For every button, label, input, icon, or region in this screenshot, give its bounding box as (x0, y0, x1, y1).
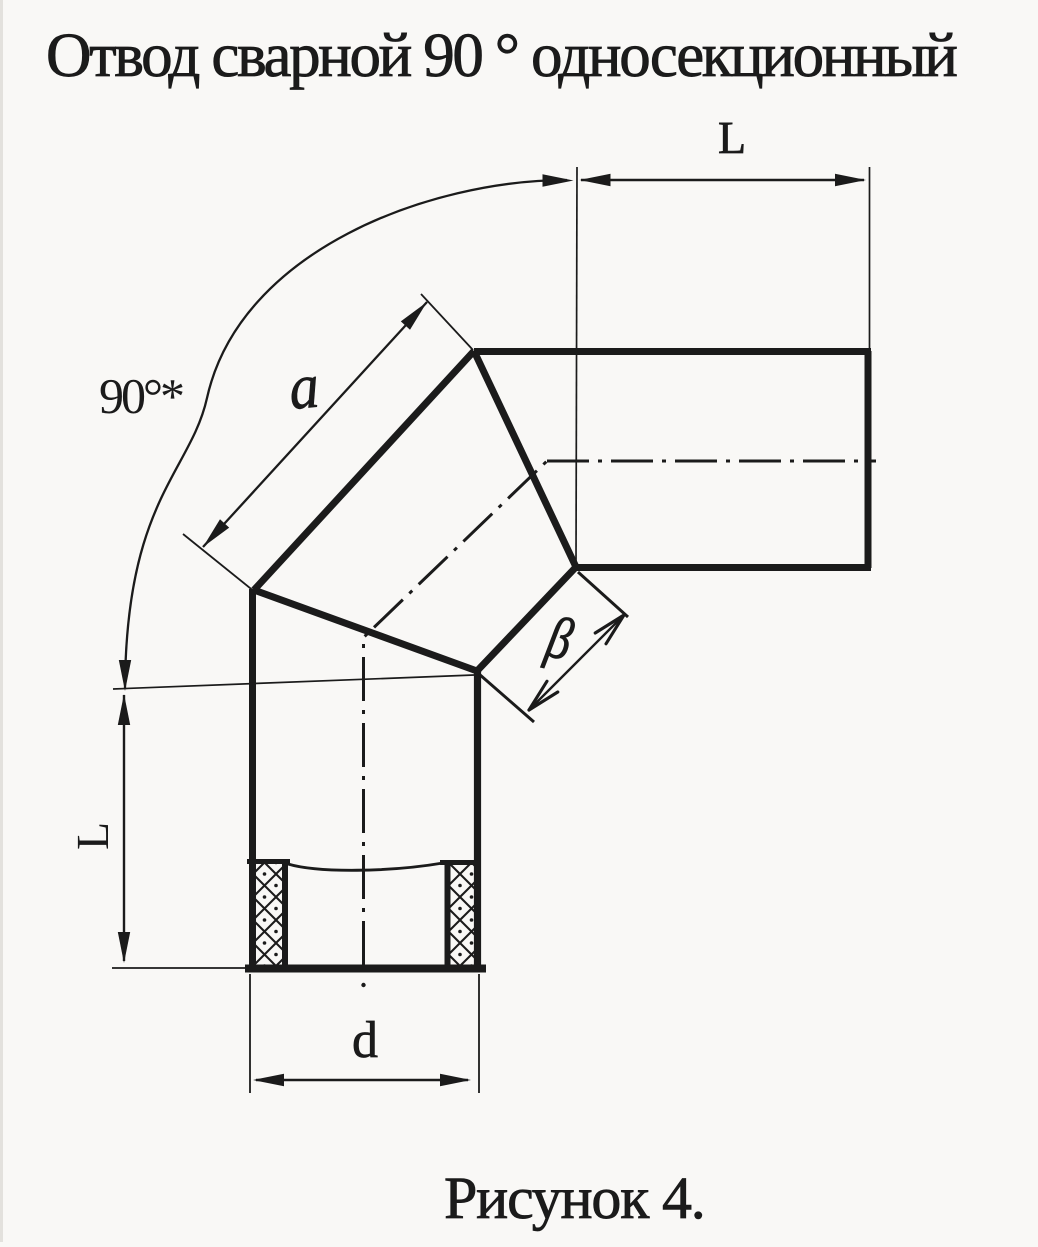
svg-text:L: L (718, 112, 746, 163)
svg-text:90°*: 90°* (99, 368, 183, 424)
svg-text:Отвод сварной 90 ° односекцион: Отвод сварной 90 ° односекционный (46, 20, 957, 90)
svg-text:Рисунок 4.: Рисунок 4. (444, 1165, 705, 1231)
svg-text:L: L (67, 822, 118, 850)
svg-text:d: d (352, 1012, 378, 1069)
svg-text:a: a (286, 350, 322, 423)
